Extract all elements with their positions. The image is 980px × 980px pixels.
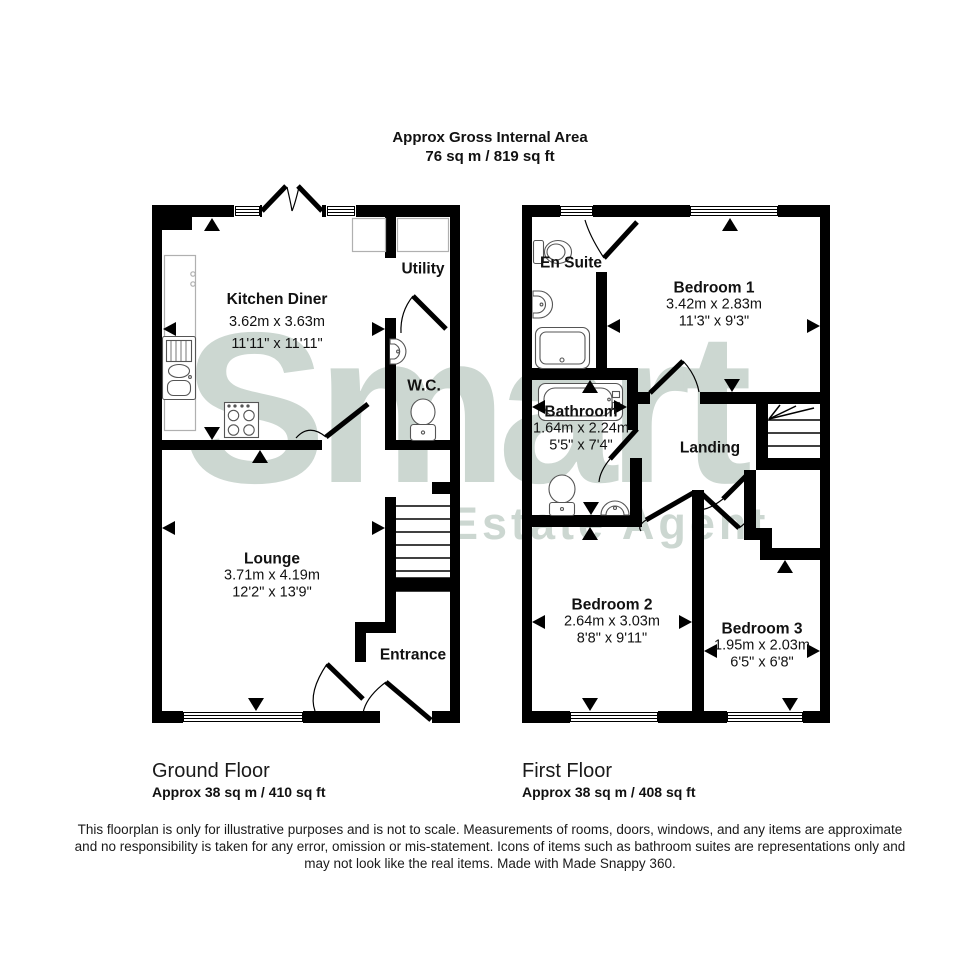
room-dim-metric: 2.64m x 3.03m [564, 614, 660, 631]
room-dim-metric: 1.64m x 2.24m [533, 421, 629, 438]
disclaimer: This floorplan is only for illustrative … [0, 821, 980, 872]
room-label-bathroom: Bathroom 1.64m x 2.24m 5'5" x 7'4" [533, 404, 629, 455]
measure-arrow [782, 698, 798, 711]
first-floor-area: Approx 38 sq m / 408 sq ft [522, 784, 696, 800]
room-name: Bedroom 2 [564, 597, 660, 614]
floorplan-page: Smart Estate Agent Approx Gross Internal… [0, 0, 980, 980]
wall [700, 392, 830, 404]
room-name: Lounge [224, 551, 320, 568]
room-dim-imperial: 11'3" x 9'3" [666, 314, 762, 331]
room-label-bedroom-3: Bedroom 3 1.95m x 2.03m 6'5" x 6'8" [714, 621, 810, 672]
wall [596, 272, 607, 380]
ground-floor-area: Approx 38 sq m / 410 sq ft [152, 784, 326, 800]
room-name: Kitchen Diner [227, 289, 328, 311]
wall [760, 548, 830, 560]
room-label-landing: Landing [680, 440, 740, 457]
room-dim-imperial: 5'5" x 7'4" [533, 438, 629, 455]
disclaimer-line: This floorplan is only for illustrative … [0, 821, 980, 838]
room-label-bedroom-1: Bedroom 1 3.42m x 2.83m 11'3" x 9'3" [666, 280, 762, 331]
disclaimer-line: and no responsibility is taken for any e… [0, 838, 980, 855]
room-dim-metric: 3.71m x 4.19m [224, 568, 320, 585]
wall [385, 217, 396, 258]
room-label-wc: W.C. [407, 378, 441, 395]
wall [450, 205, 460, 723]
room-dim-imperial: 8'8" x 9'11" [564, 631, 660, 648]
disclaimer-line: may not look like the real items. Made w… [0, 855, 980, 872]
measure-arrow [248, 698, 264, 711]
room-dim-metric: 1.95m x 2.03m [714, 638, 810, 655]
wall [692, 490, 704, 723]
toilet-icon [411, 399, 436, 441]
toilet-icon [549, 475, 575, 516]
wall [432, 482, 450, 494]
pedestal-sink-icon [601, 501, 629, 515]
measure-arrow [679, 615, 692, 629]
stairs-icon [768, 405, 820, 446]
room-label-entrance: Entrance [380, 647, 446, 664]
room-label-en-suite: En Suite [540, 255, 602, 272]
room-label-bedroom-2: Bedroom 2 2.64m x 3.03m 8'8" x 9'11" [564, 597, 660, 648]
window [184, 207, 355, 722]
wall [627, 392, 650, 404]
pedestal-sink-icon [390, 339, 406, 364]
room-name: Bedroom 1 [666, 280, 762, 297]
measure-arrow [162, 521, 175, 535]
room-label-lounge: Lounge 3.71m x 4.19m 12'2" x 13'9" [224, 551, 320, 602]
wall [522, 515, 642, 527]
wall [385, 318, 396, 440]
ground-floor-title: Ground Floor [152, 760, 270, 783]
measure-arrow [583, 502, 599, 515]
wall [756, 458, 830, 470]
room-dim-imperial: 12'2" x 13'9" [224, 585, 320, 602]
room-label-kitchen-diner: Kitchen Diner 3.62m x 3.63m 11'11" x 11'… [227, 289, 328, 355]
measure-arrow [532, 615, 545, 629]
measure-arrow [582, 527, 598, 540]
wall [162, 440, 322, 450]
room-dim-metric: 3.42m x 2.83m [666, 297, 762, 314]
room-dim-imperial: 6'5" x 6'8" [714, 655, 810, 672]
stairs-icon [396, 506, 450, 591]
measure-arrow [607, 319, 620, 333]
measure-arrow [252, 450, 268, 463]
wall [522, 368, 638, 380]
shower-icon [536, 328, 590, 369]
measure-arrow [777, 560, 793, 573]
first-floor-title: First Floor [522, 760, 612, 783]
kitchen-sink-icon [163, 337, 196, 400]
room-dim-metric: 3.62m x 3.63m [227, 311, 328, 333]
wall [522, 205, 532, 723]
wall [385, 497, 396, 628]
pedestal-sink-icon [533, 291, 553, 318]
room-name: Bathroom [533, 404, 629, 421]
room-label-utility: Utility [401, 261, 444, 278]
measure-arrow [722, 218, 738, 231]
stove-icon [225, 403, 259, 438]
measure-arrow [724, 379, 740, 392]
wall [355, 622, 366, 662]
measure-arrow [204, 427, 220, 440]
measure-arrow [372, 521, 385, 535]
measure-arrow [204, 218, 220, 231]
measure-arrow [372, 322, 385, 336]
measure-arrow [582, 698, 598, 711]
wall [385, 440, 450, 450]
room-dim-imperial: 11'11" x 11'11" [227, 333, 328, 355]
room-name: Bedroom 3 [714, 621, 810, 638]
wall [152, 205, 162, 723]
measure-arrow [807, 319, 820, 333]
